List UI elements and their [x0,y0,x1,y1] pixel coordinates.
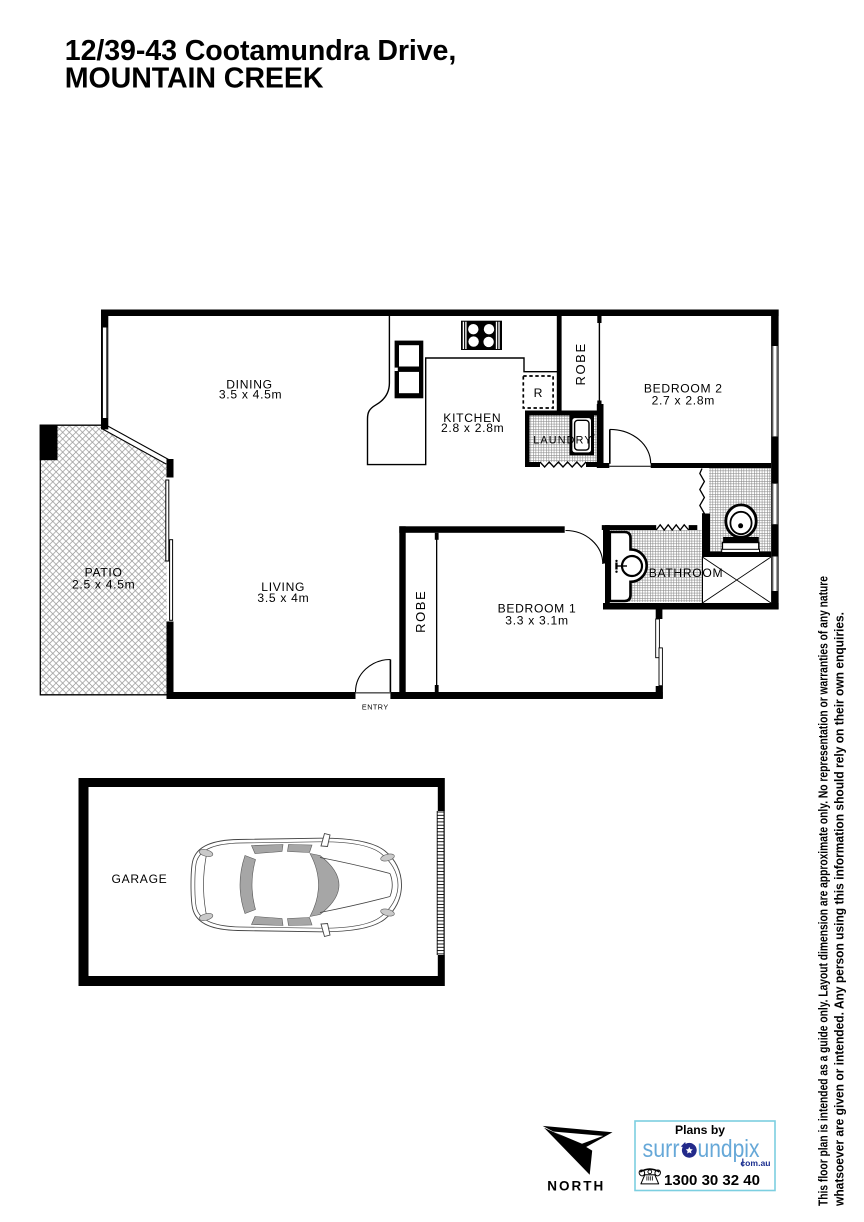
svg-text:MOUNTAIN CREEK: MOUNTAIN CREEK [65,63,324,95]
svg-text:R: R [534,386,543,400]
svg-text:This floor plan is intended as: This floor plan is intended as a guide o… [816,576,831,1206]
svg-text:3.3 x 3.1m: 3.3 x 3.1m [505,614,568,628]
svg-text:2.8 x 2.8m: 2.8 x 2.8m [441,421,504,435]
svg-text:ROBE: ROBE [413,590,428,633]
svg-text:ROBE: ROBE [573,342,588,385]
svg-text:NORTH: NORTH [547,1178,605,1193]
svg-text:surr: surr [643,1135,680,1163]
svg-text:ENTRY: ENTRY [362,703,389,712]
svg-text:3.5 x 4m: 3.5 x 4m [257,591,309,605]
svg-text:1300 30 32 40: 1300 30 32 40 [664,1172,760,1189]
svg-text:whatsoever are given or intend: whatsoever are given or intended. Any pe… [832,612,847,1207]
svg-text:BATHROOM: BATHROOM [649,566,724,580]
svg-text:LAUNDRY: LAUNDRY [533,434,592,446]
svg-text:GARAGE: GARAGE [112,872,168,886]
svg-text:2.5 x 4.5m: 2.5 x 4.5m [72,578,135,592]
svg-text:2.7 x 2.8m: 2.7 x 2.8m [652,394,715,408]
svg-text:com.au: com.au [740,1158,770,1168]
svg-text:3.5 x 4.5m: 3.5 x 4.5m [219,388,282,402]
